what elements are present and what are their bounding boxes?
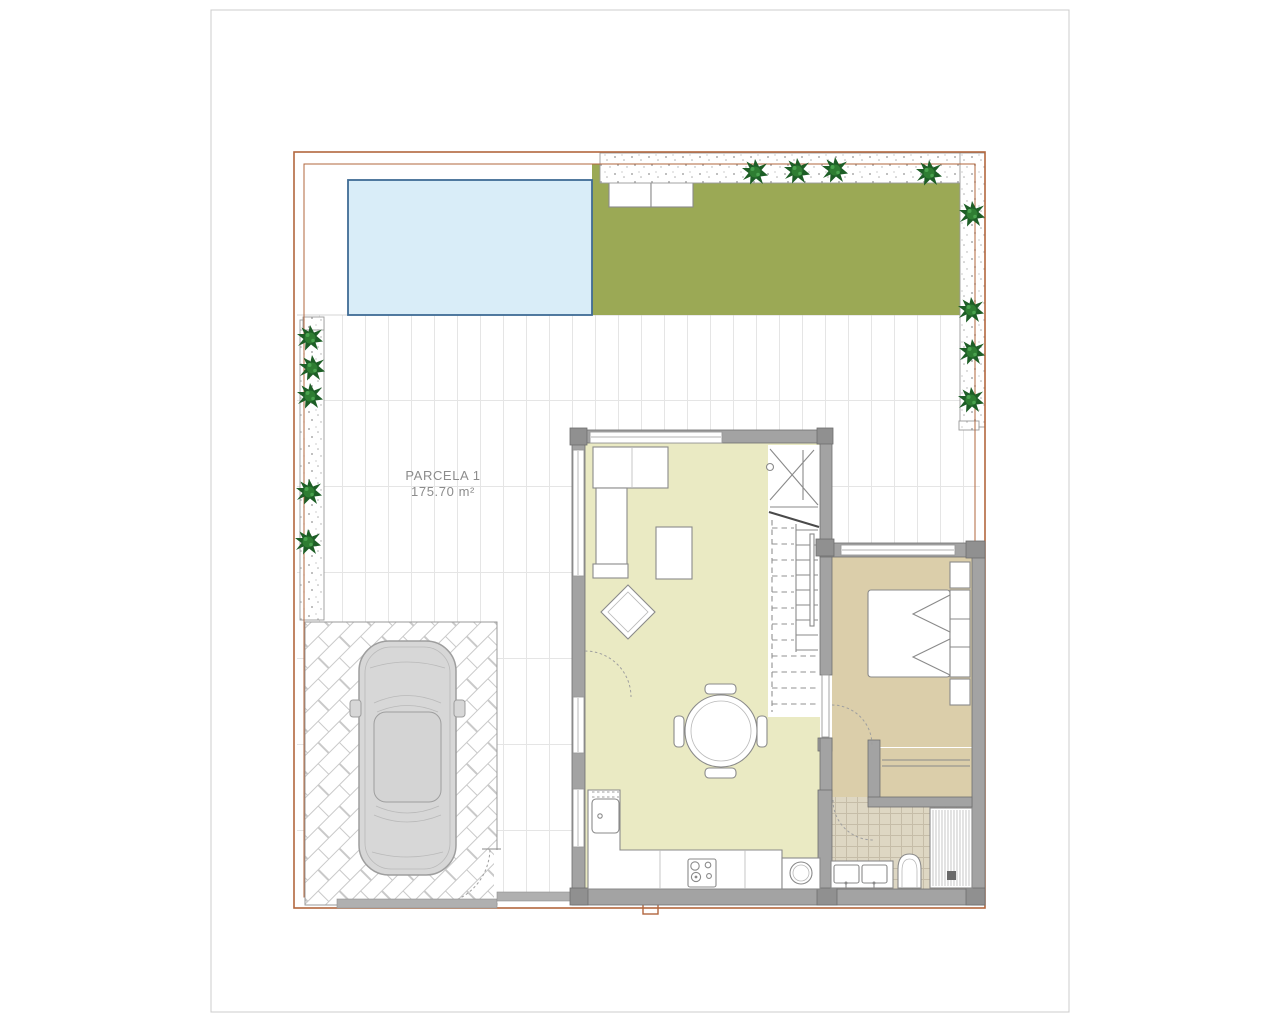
bedroom-door-leaf (822, 675, 829, 737)
living-window-west (573, 450, 584, 576)
living-window-north (590, 432, 722, 443)
stair-newel (767, 464, 774, 471)
dining-chair (674, 716, 684, 747)
washbasin (834, 865, 859, 883)
nightstand (950, 562, 970, 588)
dining-table (685, 695, 757, 767)
kitchen-sink (592, 799, 619, 833)
dining-chair (757, 716, 767, 747)
gravel-strip-right (960, 153, 985, 427)
shower-drain (947, 871, 956, 880)
planter-cap (303, 317, 324, 330)
kitchen-window-west (573, 789, 584, 847)
bed-headboard (950, 590, 970, 677)
swimming-pool (348, 180, 592, 315)
hall-window-west (573, 697, 584, 753)
wall-east (972, 543, 985, 905)
corner-sofa (593, 447, 668, 488)
gravel-strip-cap (959, 421, 979, 430)
dining-chair (705, 684, 736, 694)
sofa-armrest (593, 564, 628, 578)
floor-plan-sheet: PARCELA 1 175.70 m² (0, 0, 1280, 1024)
wall-south (572, 889, 985, 905)
threshold (497, 892, 573, 901)
wall-bath-north (868, 797, 972, 807)
car-mirror-left (350, 700, 361, 717)
corner-sofa (596, 488, 627, 574)
parcel-name-text: PARCELA 1 (405, 468, 480, 483)
floor-plan: PARCELA 1 175.70 m² (0, 0, 1280, 1024)
nightstand (950, 679, 970, 705)
car (350, 641, 465, 875)
washbasin (862, 865, 887, 883)
car-mirror-right (454, 700, 465, 717)
stair-handrail (810, 534, 814, 626)
coffee-table (656, 527, 692, 579)
dining-chair (705, 768, 736, 778)
threshold (337, 899, 497, 908)
parcel-label: PARCELA 1 175.70 m² (405, 468, 480, 499)
parcel-area-text: 175.70 m² (411, 484, 475, 499)
wall-vestibule (868, 740, 880, 798)
car-roof (374, 712, 441, 802)
